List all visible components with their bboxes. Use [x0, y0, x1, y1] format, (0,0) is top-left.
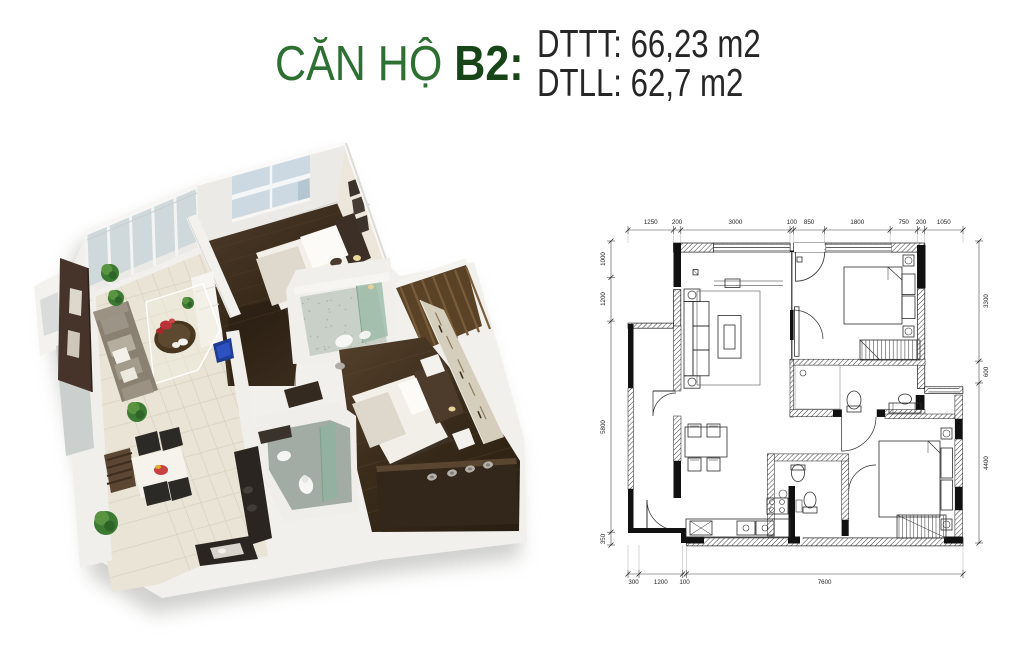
svg-text:850: 850	[804, 219, 815, 226]
svg-text:1200: 1200	[600, 292, 607, 306]
svg-text:600: 600	[983, 366, 990, 377]
svg-text:4400: 4400	[983, 456, 990, 470]
svg-text:3300: 3300	[983, 294, 990, 308]
svg-text:100: 100	[787, 219, 798, 226]
svg-text:1800: 1800	[850, 219, 864, 226]
svg-text:300: 300	[628, 579, 639, 586]
svg-text:200: 200	[672, 219, 683, 226]
svg-text:750: 750	[899, 219, 910, 226]
svg-text:350: 350	[600, 533, 607, 544]
svg-text:3000: 3000	[729, 219, 743, 226]
svg-text:1050: 1050	[937, 219, 951, 226]
svg-text:200: 200	[916, 219, 927, 226]
svg-text:100: 100	[679, 579, 690, 586]
svg-text:7600: 7600	[818, 579, 832, 586]
svg-text:1200: 1200	[654, 579, 668, 586]
svg-text:1000: 1000	[600, 252, 607, 266]
svg-text:5800: 5800	[600, 420, 607, 434]
svg-text:1250: 1250	[644, 219, 658, 226]
